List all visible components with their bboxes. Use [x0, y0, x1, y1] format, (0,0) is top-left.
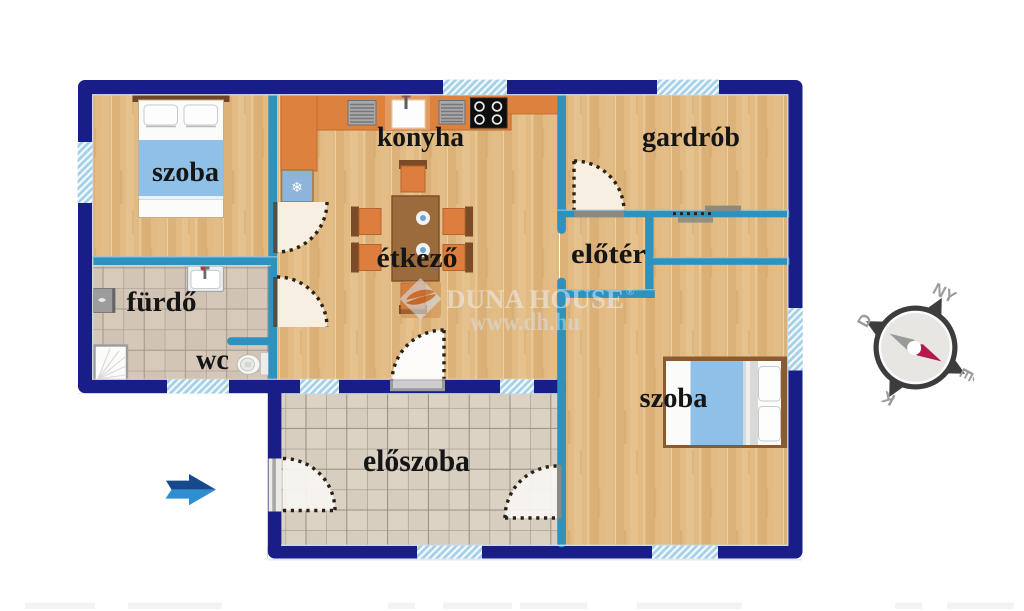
svg-text:fürdő: fürdő — [127, 287, 197, 318]
svg-text:előtér: előtér — [571, 239, 646, 270]
svg-text:szoba: szoba — [152, 157, 219, 188]
svg-text:®: ® — [626, 286, 634, 298]
svg-text:szoba: szoba — [640, 383, 708, 414]
svg-text:előszoba: előszoba — [363, 443, 470, 478]
svg-text:konyha: konyha — [377, 122, 464, 153]
svg-text:www.dh.hu: www.dh.hu — [470, 309, 580, 336]
svg-text:wc: wc — [196, 344, 229, 376]
svg-text:étkező: étkező — [377, 243, 458, 274]
svg-text:❄: ❄ — [291, 179, 303, 195]
svg-text:gardrób: gardrób — [642, 122, 740, 153]
